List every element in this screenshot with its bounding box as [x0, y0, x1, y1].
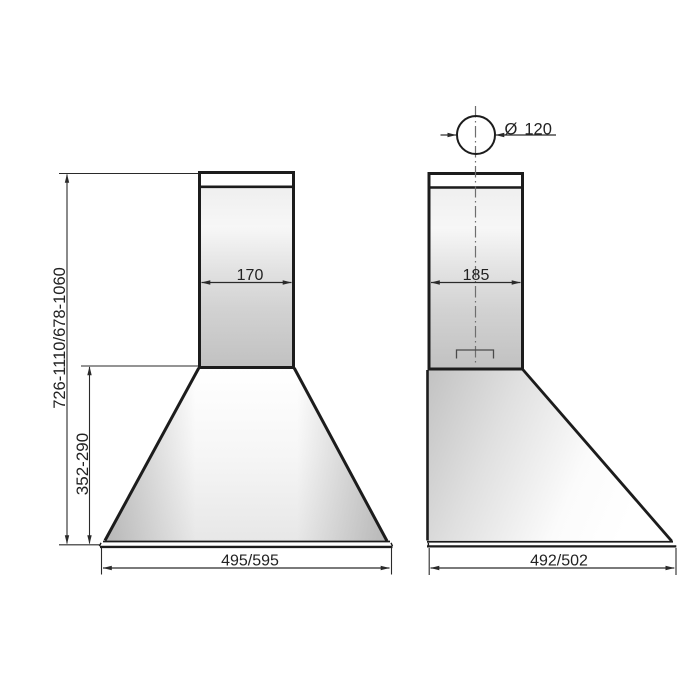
- svg-text:170: 170: [237, 267, 264, 284]
- svg-text:352-290: 352-290: [73, 433, 92, 495]
- svg-text:492/502: 492/502: [530, 553, 588, 570]
- svg-text:185: 185: [463, 267, 490, 284]
- svg-text:Ø120: Ø120: [505, 121, 552, 139]
- svg-text:495/595: 495/595: [221, 553, 279, 570]
- svg-text:726-1110/678-1060: 726-1110/678-1060: [51, 267, 69, 409]
